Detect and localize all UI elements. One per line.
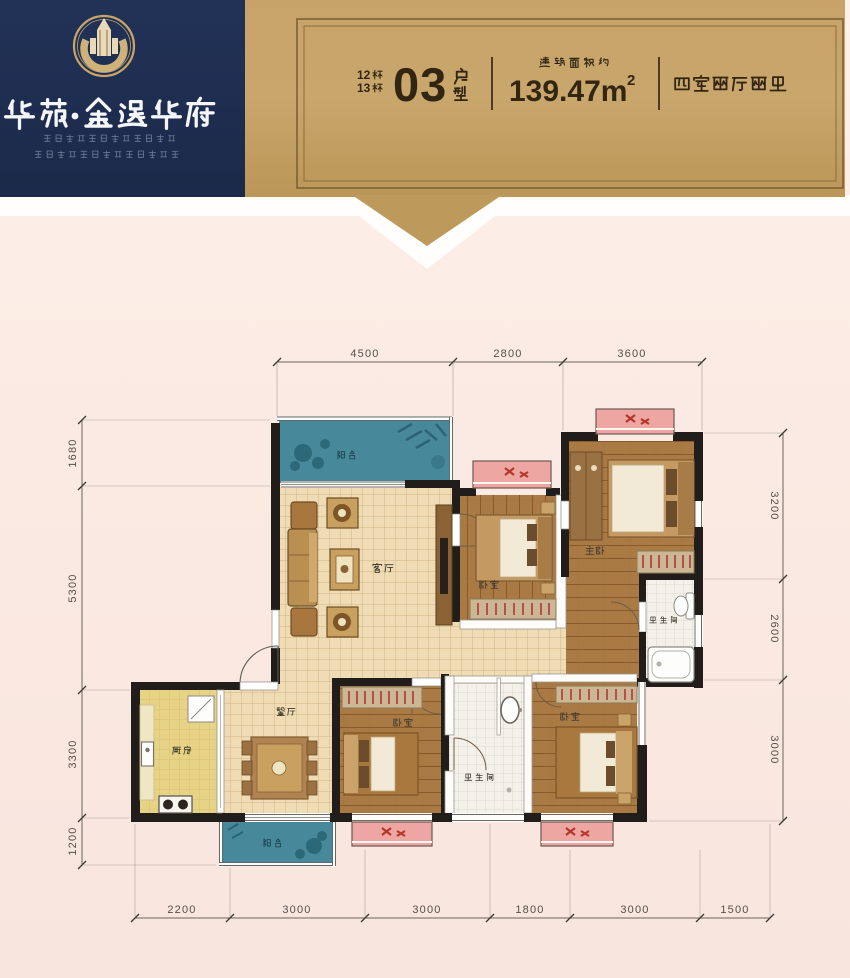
svg-text:1680: 1680 (67, 438, 79, 467)
svg-text:3000: 3000 (620, 904, 649, 916)
svg-text:2600: 2600 (768, 614, 780, 643)
svg-text:3300: 3300 (67, 739, 79, 768)
svg-text:2200: 2200 (167, 904, 196, 916)
svg-text:1500: 1500 (720, 904, 749, 916)
svg-text:13: 13 (357, 81, 371, 95)
svg-text:12: 12 (357, 68, 371, 82)
svg-text:03: 03 (393, 58, 447, 111)
svg-text:5300: 5300 (67, 573, 79, 602)
svg-text:139.47m: 139.47m (509, 75, 627, 108)
svg-text:1800: 1800 (515, 904, 544, 916)
svg-text:4500: 4500 (350, 348, 379, 360)
svg-text:3600: 3600 (617, 348, 646, 360)
svg-text:3000: 3000 (412, 904, 441, 916)
svg-text:3000: 3000 (282, 904, 311, 916)
svg-text:2: 2 (627, 72, 635, 89)
svg-text:3200: 3200 (768, 491, 780, 520)
svg-text:3000: 3000 (768, 735, 780, 764)
svg-text:1200: 1200 (67, 826, 79, 855)
svg-text:2800: 2800 (493, 348, 522, 360)
